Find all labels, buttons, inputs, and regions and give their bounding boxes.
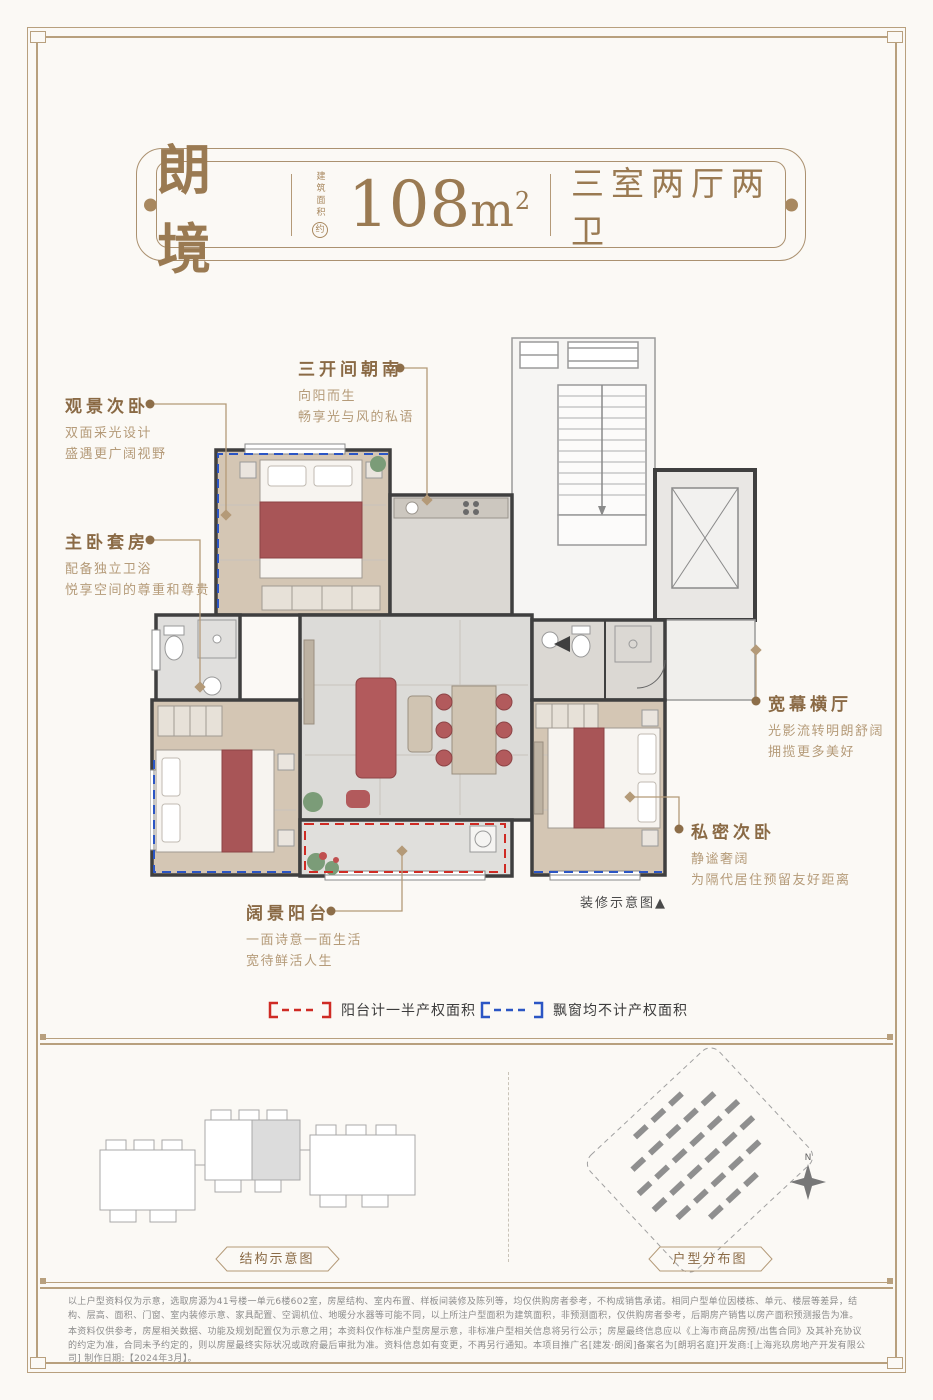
annotation-title: 三开间朝南 bbox=[298, 355, 414, 380]
annotation-line: 为隔代居住预留友好距离 bbox=[691, 871, 851, 892]
plaque-dot-right bbox=[785, 198, 798, 211]
annotation-line: 悦享空间的尊重和尊贵 bbox=[65, 581, 210, 602]
diagram-divider bbox=[508, 1072, 509, 1262]
disclaimer-paragraph: 以上户型资料仅为示意，选取房源为41号楼一单元6楼602室，房屋结构、室内布置、… bbox=[68, 1296, 868, 1323]
annotation-line: 畅享光与风的私语 bbox=[298, 408, 414, 429]
annotation-line: 配备独立卫浴 bbox=[65, 560, 210, 581]
annotation-body: 光影流转明朗舒阔 拥揽更多美好 bbox=[768, 722, 884, 764]
plaque-divider bbox=[291, 174, 292, 236]
plaque-divider bbox=[550, 174, 551, 236]
legend-label: 阳台计一半产权面积 bbox=[341, 1000, 476, 1020]
structure-diagram-label: 结构示意图 bbox=[239, 1251, 314, 1267]
disclaimer: 以上户型资料仅为示意，选取房源为41号楼一单元6楼602室，房屋结构、室内布置、… bbox=[68, 1296, 868, 1370]
area-value: 108m2 bbox=[348, 173, 530, 237]
elevator bbox=[655, 470, 755, 620]
area-unit-m: m bbox=[470, 183, 514, 237]
frame-corner-ornament bbox=[887, 31, 903, 43]
approx-circle: 约 bbox=[312, 222, 328, 238]
annotation-line: 向阳而生 bbox=[298, 387, 414, 408]
annotation-body: 一面诗意一面生活 宽待鲜活人生 bbox=[246, 931, 362, 973]
legend-baywindow: 飘窗均不计产权面积 bbox=[480, 1000, 688, 1020]
area-unit-sup: 2 bbox=[515, 187, 530, 215]
stairwell bbox=[512, 338, 655, 620]
area-label-column: 建筑面积 约 bbox=[312, 171, 328, 238]
annotation-line: 静谧奢阔 bbox=[691, 850, 851, 871]
brand-name: 朗境 bbox=[157, 126, 271, 284]
disclaimer-paragraph: 本资料仅供参考，房屋相关数据、功能及规划配置仅为示意之用；本资料仅作标准户型房屋… bbox=[68, 1326, 868, 1367]
annotation-balcony: 阔景阳台 一面诗意一面生活 宽待鲜活人生 bbox=[246, 899, 362, 973]
annotation-title: 私密次卧 bbox=[691, 818, 851, 843]
annotation-view-bedroom: 观景次卧 双面采光设计 盛遇更广阔视野 bbox=[65, 392, 167, 466]
distribution-map-label: 户型分布图 bbox=[672, 1251, 747, 1267]
annotation-body: 配备独立卫浴 悦享空间的尊重和尊贵 bbox=[65, 560, 210, 602]
annotation-private-bedroom: 私密次卧 静谧奢阔 为隔代居住预留友好距离 bbox=[691, 818, 851, 892]
distribution-map: N bbox=[582, 1043, 826, 1277]
kitchen-fixtures bbox=[394, 498, 508, 518]
annotation-line: 一面诗意一面生活 bbox=[246, 931, 362, 952]
legend-balcony: 阳台计一半产权面积 bbox=[268, 1000, 476, 1020]
annotation-south-facing: 三开间朝南 向阳而生 畅享光与风的私语 bbox=[298, 355, 414, 429]
diagram-labels: 结构示意图 户型分布图 bbox=[216, 1247, 772, 1271]
annotation-title: 阔景阳台 bbox=[246, 899, 362, 924]
red-dashed-bracket-icon bbox=[268, 1001, 332, 1019]
annotation-line: 光影流转明朗舒阔 bbox=[768, 722, 884, 743]
header-plaque: 朗境 建筑面积 约 108m2 三室两厅两卫 bbox=[136, 148, 806, 261]
annotation-master-suite: 主卧套房 配备独立卫浴 悦享空间的尊重和尊贵 bbox=[65, 528, 210, 602]
floorplan-poster: 朗境 建筑面积 约 108m2 三室两厅两卫 bbox=[0, 0, 933, 1400]
annotation-line: 双面采光设计 bbox=[65, 424, 167, 445]
annotation-title: 主卧套房 bbox=[65, 528, 210, 553]
annotation-body: 双面采光设计 盛遇更广阔视野 bbox=[65, 424, 167, 466]
decoration-note: 装修示意图▲ bbox=[580, 892, 667, 911]
frame-corner-ornament bbox=[887, 1357, 903, 1369]
annotation-body: 静谧奢阔 为隔代居住预留友好距离 bbox=[691, 850, 851, 892]
section-divider-top bbox=[40, 1038, 893, 1045]
section-divider-bottom bbox=[40, 1282, 893, 1289]
annotation-line: 宽待鲜活人生 bbox=[246, 952, 362, 973]
floorplan bbox=[150, 330, 770, 910]
blue-dashed-bracket-icon bbox=[480, 1001, 544, 1019]
room-layout: 三室两厅两卫 bbox=[571, 157, 785, 253]
frame-corner-ornament bbox=[30, 31, 46, 43]
annotation-title: 观景次卧 bbox=[65, 392, 167, 417]
frame-corner-ornament bbox=[30, 1357, 46, 1369]
area-label-vertical: 建筑面积 bbox=[314, 171, 327, 219]
area-number: 108 bbox=[348, 173, 470, 237]
legend-label: 飘窗均不计产权面积 bbox=[553, 1000, 688, 1020]
annotation-body: 向阳而生 畅享光与风的私语 bbox=[298, 387, 414, 429]
plaque-inner: 朗境 建筑面积 约 108m2 三室两厅两卫 bbox=[156, 161, 786, 248]
area-unit: m2 bbox=[470, 187, 530, 233]
annotation-wide-living: 宽幕横厅 光影流转明朗舒阔 拥揽更多美好 bbox=[768, 690, 884, 764]
compass-icon: N bbox=[790, 1153, 826, 1200]
annotation-title: 宽幕横厅 bbox=[768, 690, 884, 715]
public-corridor bbox=[655, 620, 755, 700]
compass-label: N bbox=[805, 1153, 812, 1163]
annotation-line: 盛遇更广阔视野 bbox=[65, 445, 167, 466]
annotation-line: 拥揽更多美好 bbox=[768, 743, 884, 764]
